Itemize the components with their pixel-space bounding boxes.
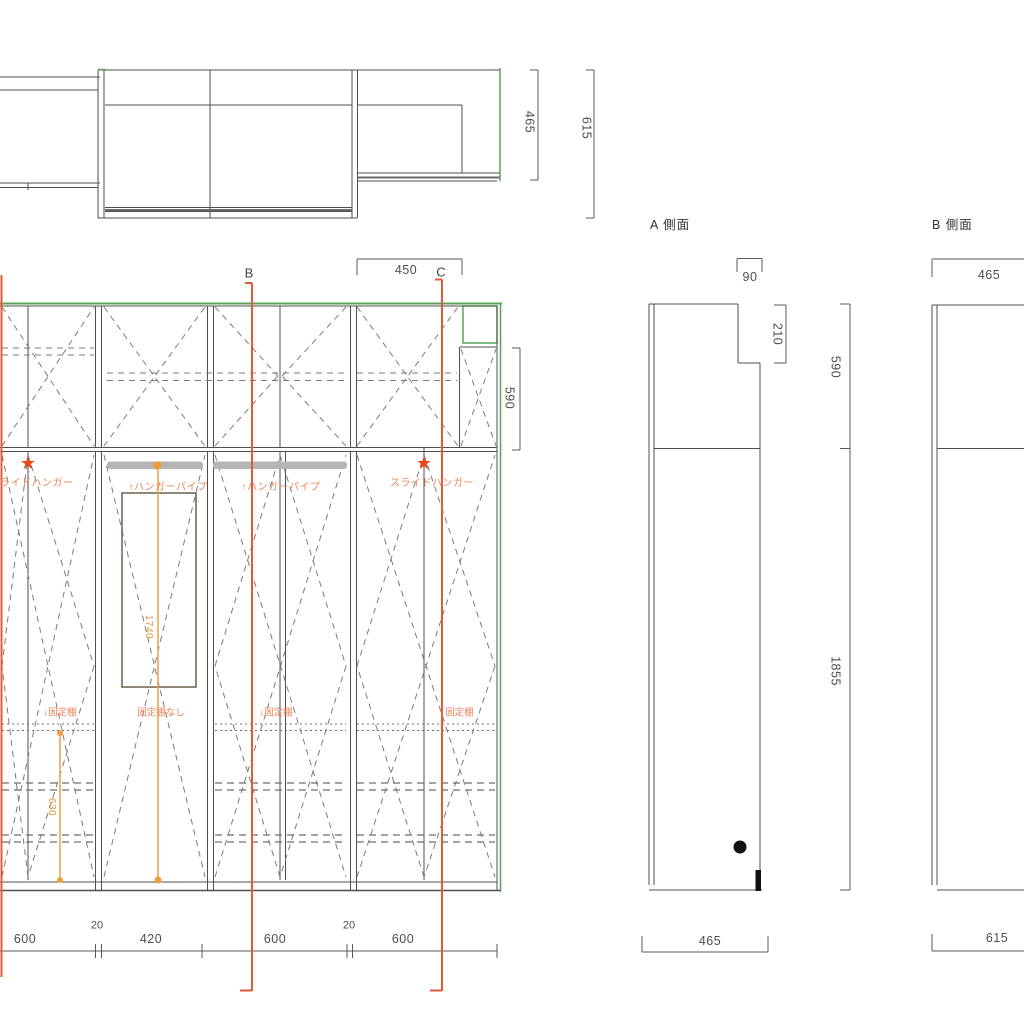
door-knob-dot (734, 841, 747, 854)
section-lines (2, 275, 443, 991)
door-edge-black-bar (756, 870, 762, 891)
plan-dim-465: 465 (523, 111, 536, 133)
plan-dim-brackets (530, 70, 594, 218)
label-hanger-pipe-2: ↑ハンガーパイプ (242, 483, 321, 493)
shelf-dashed-lines (2, 783, 495, 842)
label-shelf-length-630: 630 (46, 798, 56, 816)
elevation-green-corner-box (463, 306, 497, 343)
drawing-canvas (0, 0, 1024, 1024)
side-view-a (642, 259, 850, 953)
hanger-pipe-bar-right (213, 462, 347, 470)
side-a-title: A 側面 (650, 219, 690, 232)
label-pipe-length-1740: 1740 (143, 615, 153, 639)
side-b-dim-615: 615 (986, 932, 1008, 945)
bottom-dim-20-1: 20 (91, 921, 103, 932)
bottom-dim-600-2: 600 (264, 933, 286, 946)
side-a-dim-590: 590 (829, 356, 842, 378)
bottom-dim-420: 420 (140, 933, 162, 946)
bottom-dim-20-2: 20 (343, 921, 355, 932)
side-b-dim-465: 465 (978, 269, 1000, 282)
plan-green-edge (98, 68, 500, 181)
section-label-c: C (436, 266, 445, 279)
label-slide-hanger-left: ライドハンガー (0, 479, 74, 489)
fixed-shelf-dotted-lines (2, 724, 495, 731)
section-label-b: B (245, 267, 254, 280)
slide-hanger-star-icon-left: ★ (20, 454, 36, 472)
bottom-dim-600-1: 600 (14, 933, 36, 946)
side-a-dim-90: 90 (743, 271, 758, 284)
side-b-title: B 側面 (932, 219, 973, 232)
label-no-fixed-shelf: 固定棚なし (137, 708, 185, 718)
label-fixed-shelf-1: ↓固定棚 (43, 708, 76, 718)
plan-view (0, 68, 594, 218)
elevation-dim-450: 450 (395, 264, 417, 277)
side-b-dimension-lines (932, 259, 1024, 951)
label-fixed-shelf-2: ↓固定棚 (259, 708, 292, 718)
plan-outline-lines (0, 70, 500, 218)
side-a-outline (649, 304, 762, 890)
section-line-b (240, 283, 252, 991)
bottom-dim-600-3: 600 (392, 933, 414, 946)
plan-dim-615: 615 (580, 117, 593, 139)
side-a-dim-210: 210 (771, 323, 784, 345)
side-a-dim-1855: 1855 (829, 656, 842, 686)
cad-drawing-sheet: 465 615 B C 450 590 600 20 420 600 20 60… (0, 0, 1024, 1024)
side-b-outline (932, 305, 1024, 890)
plan-track-thick-lines (105, 178, 500, 211)
slide-hanger-star-icon-right: ★ (416, 454, 432, 472)
label-fixed-shelf-3: ↓固定棚 (440, 708, 473, 718)
label-slide-hanger-right: スライドハンガー (390, 479, 474, 489)
side-a-dim-465: 465 (699, 935, 721, 948)
front-elevation (0, 259, 520, 991)
elevation-structure-lines (0, 306, 497, 890)
side-view-b (932, 259, 1024, 951)
pipe-height-box (122, 493, 196, 687)
door-swing-dashed-lines (2, 307, 496, 877)
label-hanger-pipe-1: ↑ハンガーパイプ (129, 483, 208, 493)
elevation-dim-590: 590 (503, 387, 516, 409)
hanger-bar-dot (153, 462, 161, 470)
amber-dimension-lines (57, 462, 162, 884)
